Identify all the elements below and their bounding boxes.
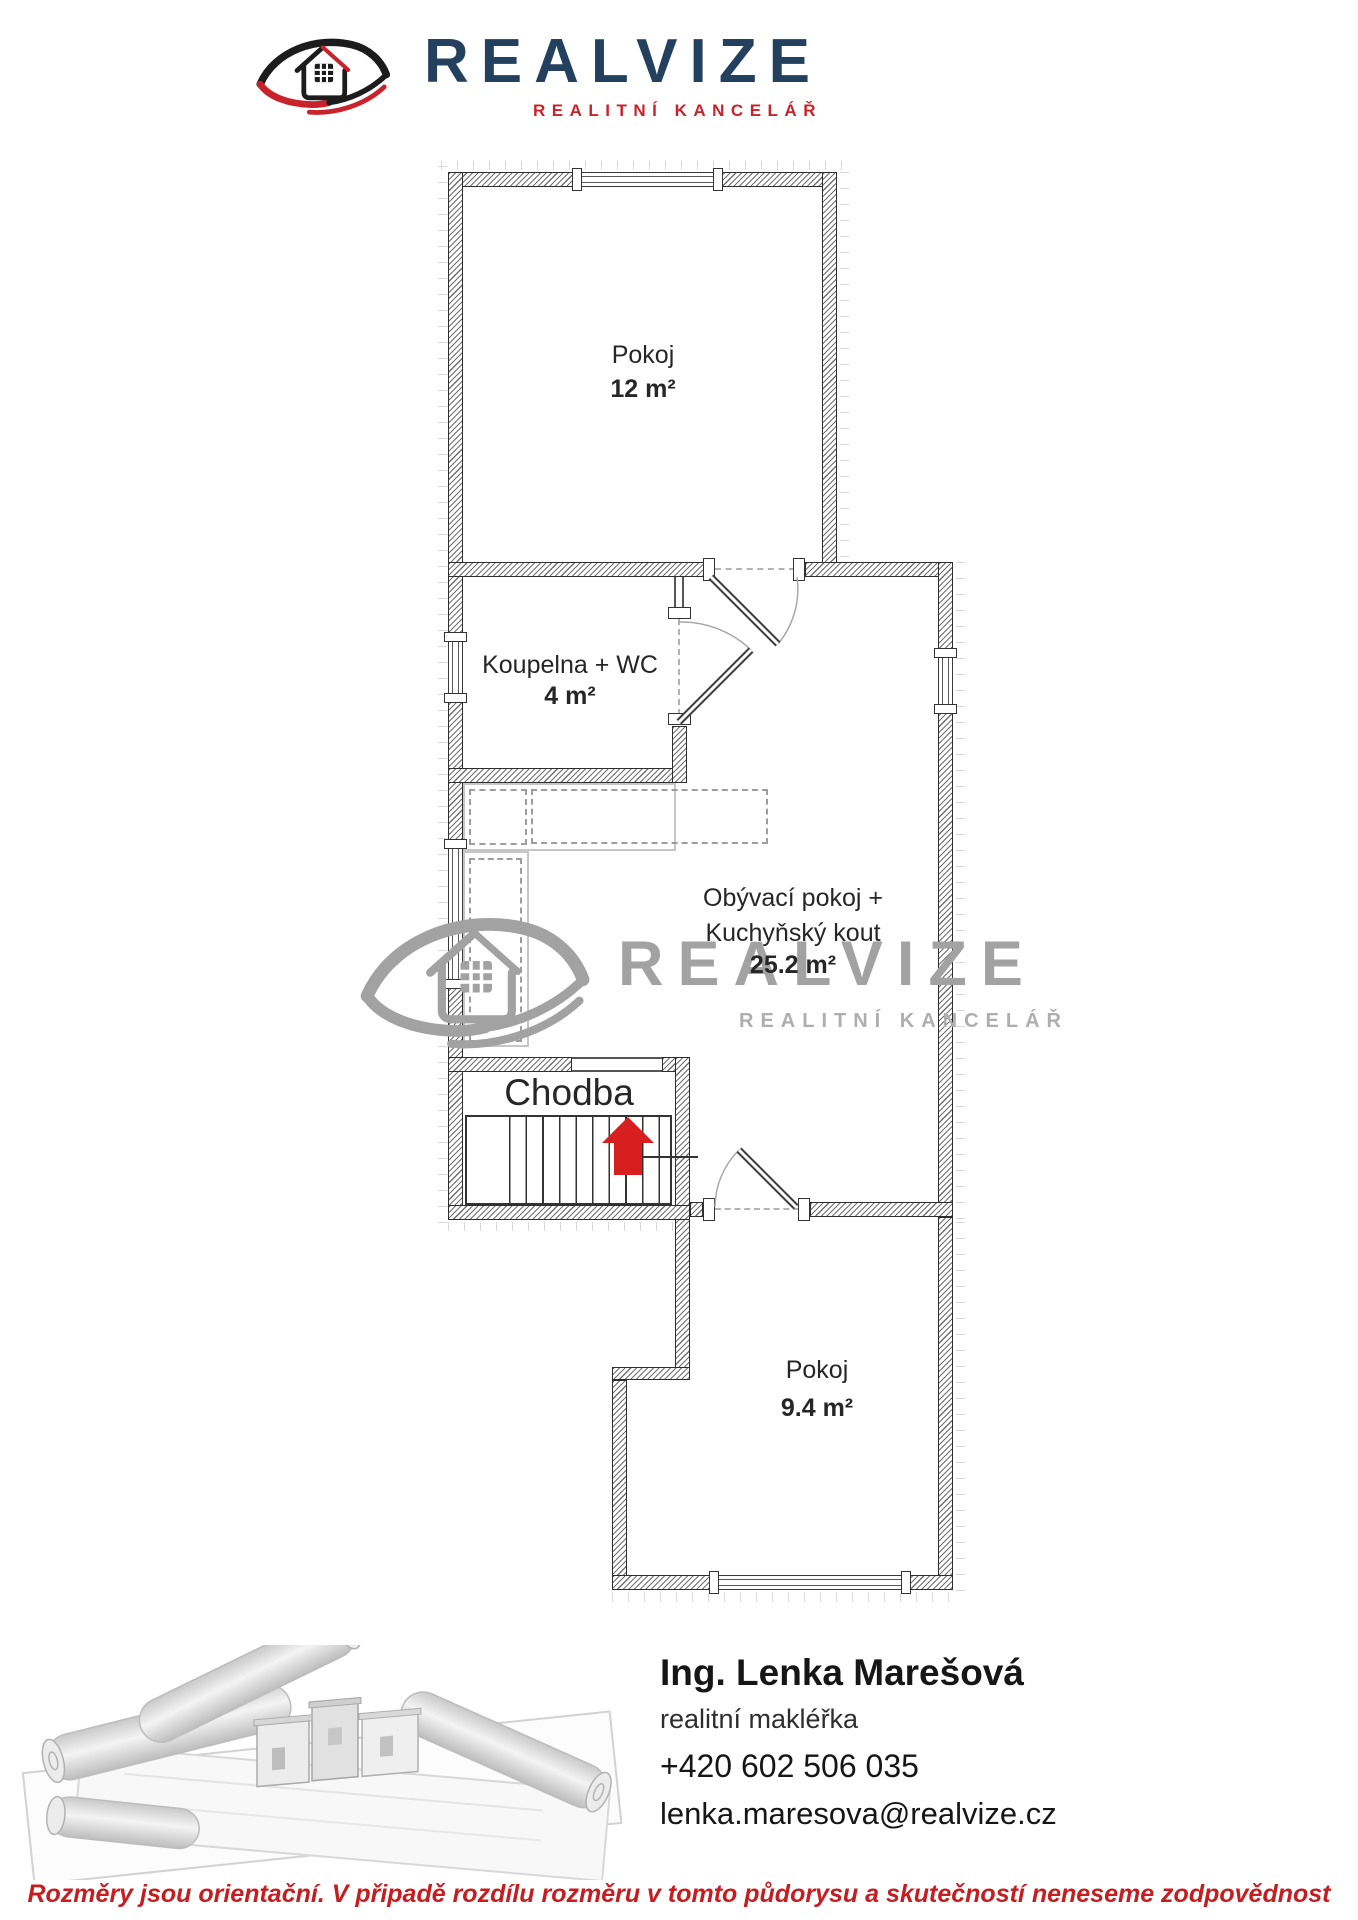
wall-bottom-room-bottom-left <box>612 1575 715 1590</box>
wall-top-room-bottom <box>448 562 705 577</box>
room-top-area: 12 m² <box>610 377 675 402</box>
wall-bottom-room-left <box>612 1380 627 1590</box>
wall-hall-top-left <box>448 1057 572 1072</box>
jamb <box>444 632 467 642</box>
agent-role: realitní makléřka <box>660 1704 1057 1735</box>
room-bottom-area: 9.4 m² <box>781 1396 853 1421</box>
jamb <box>444 693 467 703</box>
floorplan-flyer: REALVIZE REALITNÍ KANCELÁŘ <box>0 0 1358 1920</box>
jamb <box>934 704 957 714</box>
disclaimer-text: Rozměry jsou orientační. V připadě rozdí… <box>0 1880 1358 1909</box>
ruler-right-living <box>956 562 965 1222</box>
wall-bottom-room-top-b <box>810 1202 953 1217</box>
watermark-eye-icon <box>343 912 620 1052</box>
ruler-top <box>441 161 844 170</box>
wall-bottom-room-bottom-right <box>905 1575 953 1590</box>
jamb <box>709 1571 719 1594</box>
agent-card: Ing. Lenka Marešová realitní makléřka +4… <box>660 1652 1057 1832</box>
window-bottom-room <box>715 1575 905 1590</box>
living-label-2: Kuchyňský kout <box>705 921 880 946</box>
living-area: 25.2 m² <box>750 953 836 978</box>
jamb <box>444 839 467 849</box>
brand-tagline: REALITNÍ KANCELÁŘ <box>424 101 822 121</box>
brand-name: REALVIZE <box>424 31 822 93</box>
window-living-right <box>938 652 953 708</box>
wall-bath-bottom <box>448 768 687 783</box>
wall-bath-partition <box>674 577 684 609</box>
wall-living-right-upper <box>938 562 953 652</box>
door-opening-top-room <box>715 568 795 570</box>
hall-label: Chodba <box>504 1074 634 1111</box>
bathroom-label: Koupelna + WC <box>482 653 658 678</box>
wall-top-room-top-right <box>717 172 837 187</box>
wall-top-room-top-left <box>448 172 578 187</box>
window-bath-left <box>448 638 463 697</box>
wall-top-room-right <box>822 172 837 577</box>
stair-direction-arrow <box>602 1117 654 1175</box>
agent-name: Ing. Lenka Marešová <box>660 1652 1057 1695</box>
header-text: REALVIZE REALITNÍ KANCELÁŘ <box>424 31 822 121</box>
jamb <box>572 168 582 191</box>
wall-hall-bottom <box>448 1205 690 1220</box>
ruler-right-bottom-room <box>956 1222 965 1597</box>
header-logo: REALVIZE REALITNÍ KANCELÁŘ <box>252 22 852 130</box>
room-bottom-label: Pokoj <box>786 1358 849 1383</box>
jamb <box>713 168 723 191</box>
jamb <box>934 648 957 658</box>
ruler-bottom-room <box>612 1593 957 1602</box>
wall-bath-right-low <box>672 726 687 783</box>
door-bathroom <box>665 610 775 730</box>
door-bottom-room <box>700 1135 810 1215</box>
kitchen-cabinet <box>531 789 768 844</box>
wall-bottom-room-right <box>938 1217 953 1590</box>
hall-opening <box>572 1057 662 1072</box>
bathroom-area: 4 m² <box>544 684 595 709</box>
wall-living-top <box>805 562 953 577</box>
ruler-bottom-hall <box>448 1222 692 1231</box>
window-top-room <box>578 172 717 187</box>
realvize-eye-logo-icon <box>252 28 402 124</box>
room-top-label: Pokoj <box>612 343 675 368</box>
wall-bottom-room-step <box>612 1367 690 1380</box>
living-label-1: Obývací pokoj + <box>703 886 883 911</box>
blueprint-decoration <box>12 1645 637 1880</box>
ruler-right-top-room <box>840 172 849 564</box>
agent-phone: +420 602 506 035 <box>660 1748 1057 1785</box>
agent-email: lenka.maresova@realvize.cz <box>660 1796 1057 1832</box>
jamb <box>901 1571 911 1594</box>
watermark-tagline: REALITNÍ KANCELÁŘ <box>618 1010 1068 1033</box>
kitchen-cabinet <box>469 789 527 845</box>
